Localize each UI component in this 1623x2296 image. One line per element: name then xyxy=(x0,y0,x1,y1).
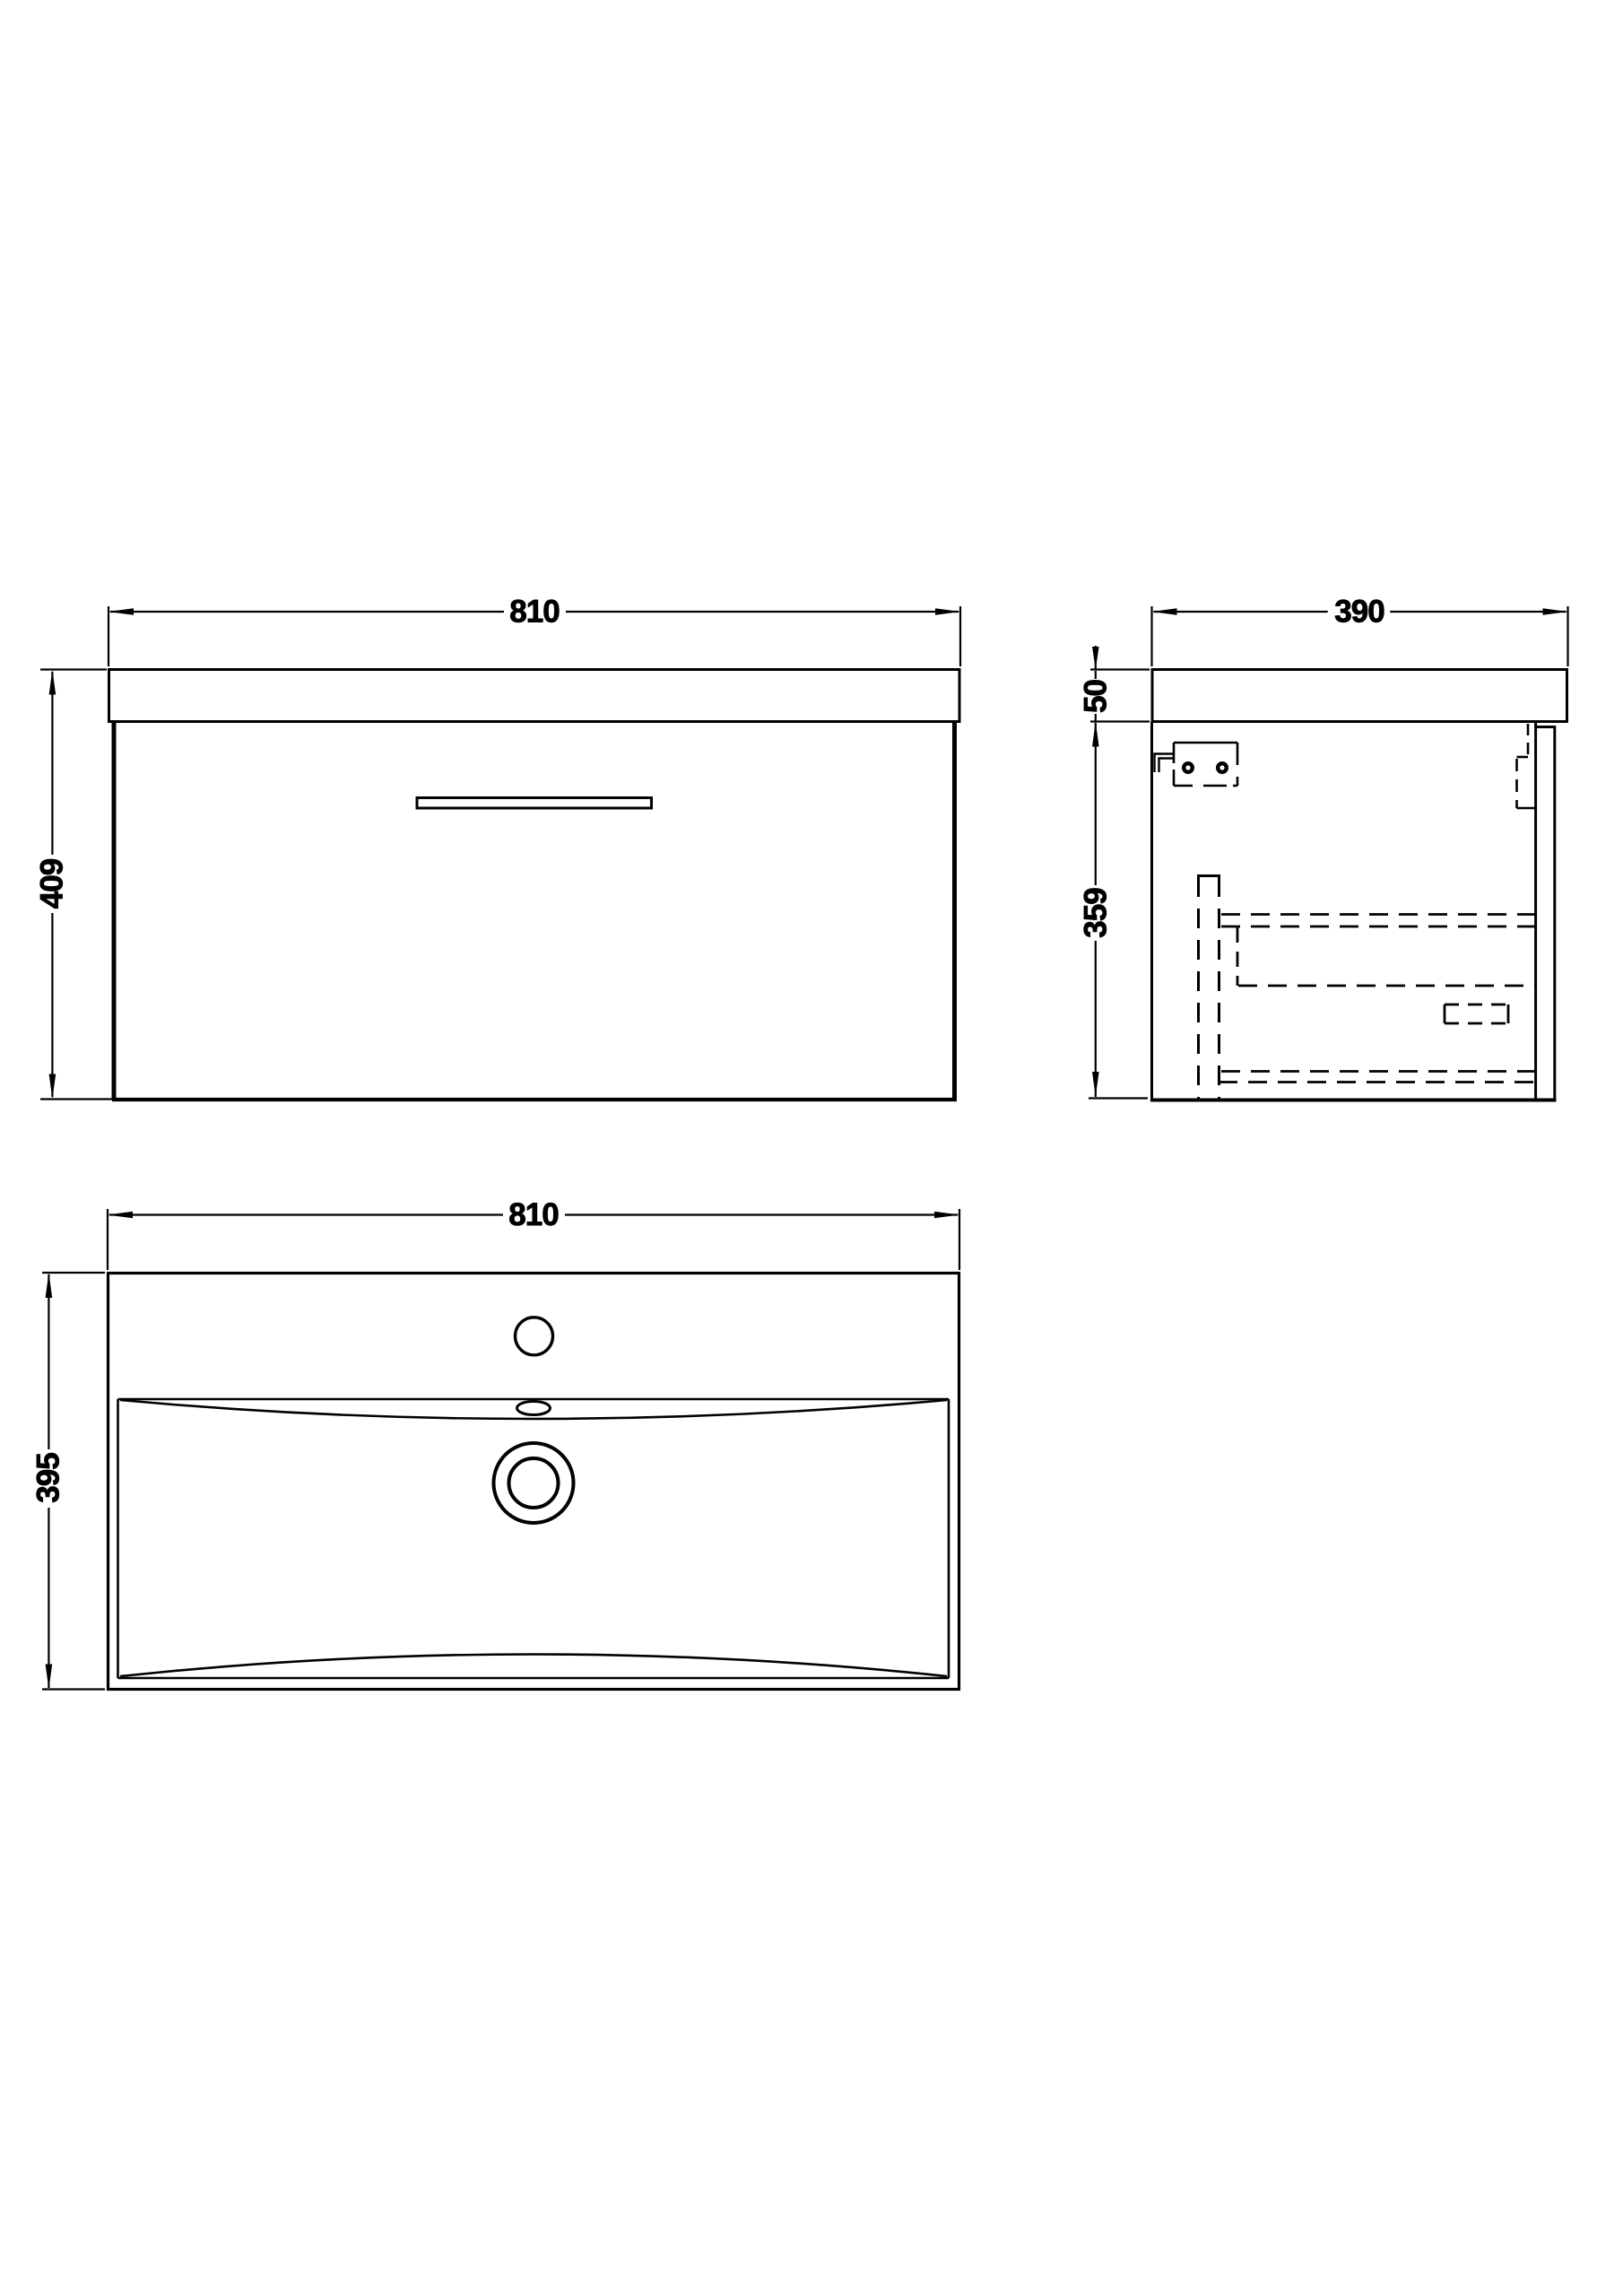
svg-text:810: 810 xyxy=(509,595,560,630)
svg-text:359: 359 xyxy=(1078,888,1113,938)
svg-text:395: 395 xyxy=(31,1453,66,1503)
svg-text:50: 50 xyxy=(1078,680,1113,713)
svg-text:810: 810 xyxy=(508,1197,559,1232)
svg-text:409: 409 xyxy=(35,858,70,909)
svg-text:390: 390 xyxy=(1334,595,1384,630)
